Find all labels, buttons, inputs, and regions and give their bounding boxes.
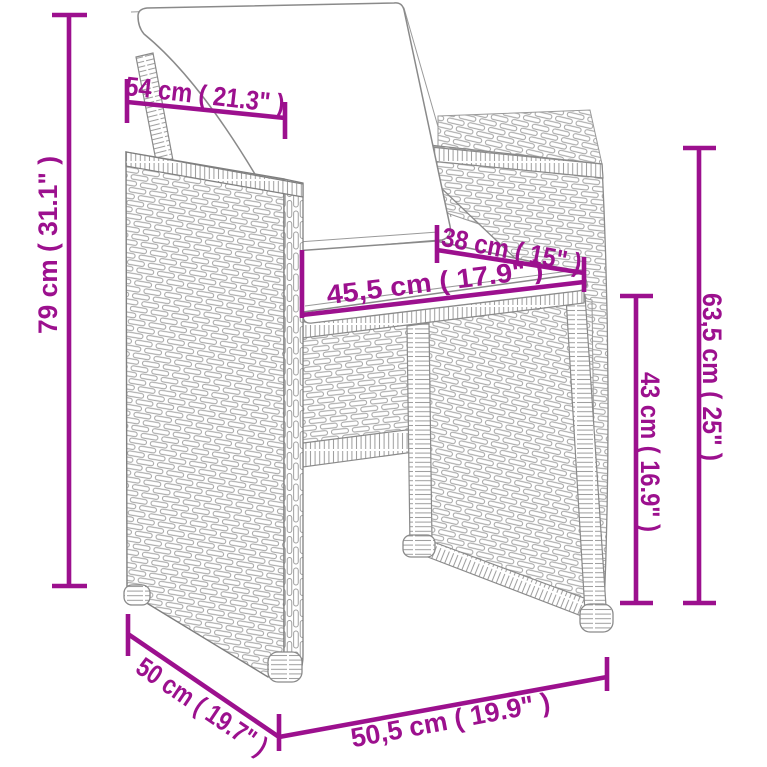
left-back-foot bbox=[124, 585, 150, 605]
left-front-foot bbox=[268, 652, 302, 682]
dimension-label-base-depth: 50 cm ( 19.7" ) bbox=[131, 652, 274, 762]
dimension-label-base-width: 50,5 cm ( 19.9" ) bbox=[348, 687, 552, 753]
dimension-diagram: 79 cm ( 31.1" ) 54 cm ( 21.3" ) 38 cm ( … bbox=[0, 0, 767, 767]
chair-dimension-drawing: 79 cm ( 31.1" ) 54 cm ( 21.3" ) 38 cm ( … bbox=[0, 0, 767, 767]
dimension-label-overall-height: 79 cm ( 31.1" ) bbox=[33, 156, 63, 334]
right-front-foot bbox=[580, 604, 613, 632]
back-right-foot bbox=[403, 535, 435, 557]
dimension-label-side-height: 63,5 cm ( 25" ) bbox=[697, 293, 727, 461]
dimension-label-seat-height: 43 cm ( 16.9" ) bbox=[635, 372, 665, 532]
back-right-leg bbox=[407, 323, 432, 546]
